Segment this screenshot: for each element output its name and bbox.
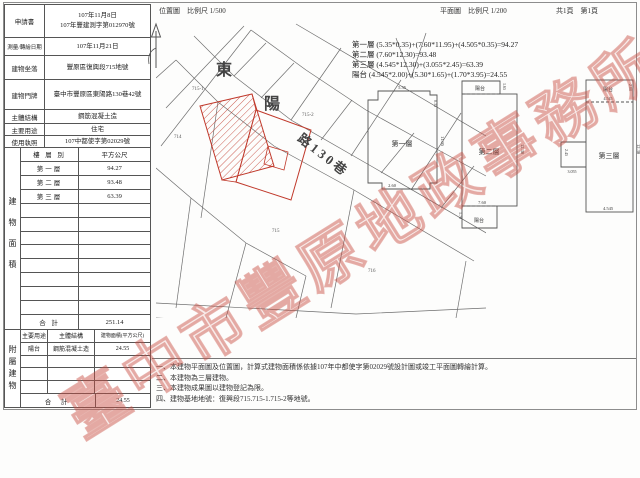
row-label: 主體結構 bbox=[5, 110, 45, 123]
total-area: 24.55 bbox=[96, 394, 150, 407]
table-row: 建物門牌 臺中市豐原區東陽路130巷42號 bbox=[4, 80, 151, 110]
dim-label: 11.95 bbox=[440, 136, 445, 147]
dim-label: 1.65 bbox=[502, 83, 507, 90]
row-value: 107中都使字第02029號 bbox=[45, 136, 150, 147]
row-label: 建物坐落 bbox=[5, 56, 45, 79]
table-row: 主體結構 鋼筋混凝土造 bbox=[4, 110, 151, 124]
floor-area-side-label: 建物面積 bbox=[5, 148, 21, 329]
floor-name: 第三層 bbox=[21, 190, 79, 203]
row-value: 住宅 bbox=[45, 124, 150, 135]
table-row: 第三層 63.39 bbox=[21, 190, 150, 204]
floor3-balcony-label: 陽台 bbox=[603, 86, 613, 93]
total-label: 合 計 bbox=[21, 394, 96, 407]
empty-row bbox=[21, 356, 150, 369]
row-value: 107年11月21日 bbox=[45, 38, 150, 55]
dim-label: 0.35 bbox=[433, 100, 438, 107]
subject-building-outline bbox=[200, 94, 311, 200]
row-value: 鋼筋混凝土造 bbox=[45, 110, 150, 123]
table-header-row: 樓 層 別 平方公尺 bbox=[21, 148, 150, 162]
note-line: 一、本建物平面圖及位置圖，計算式建物面積係依據107年中都使字第02029號設計… bbox=[156, 362, 636, 373]
parcel-number: 715 bbox=[272, 229, 280, 234]
empty-row bbox=[21, 273, 150, 287]
empty-row bbox=[21, 204, 150, 218]
total-label: 合 計 bbox=[21, 315, 79, 329]
parcel-number: 715-1 bbox=[192, 87, 204, 92]
column-header-floor: 樓 層 別 bbox=[21, 148, 79, 161]
floor2-label: 第二層 bbox=[479, 147, 500, 156]
column-header-structure: 主體結構 bbox=[48, 330, 95, 342]
table-row: 使用執照 107中都使字第02029號 bbox=[4, 136, 151, 148]
table-row: 陽台 鋼筋混凝土造 24.55 bbox=[21, 343, 150, 356]
parcel-number: 715-2 bbox=[302, 113, 314, 118]
dim-label: 7.60 bbox=[478, 200, 487, 205]
empty-row bbox=[21, 232, 150, 246]
dim-label: 3.055 bbox=[568, 169, 577, 174]
table-header-row: 主要用途 主體結構 建物面積(平方公尺) bbox=[21, 330, 150, 343]
floor-name: 第二層 bbox=[21, 176, 79, 189]
location-map-scale-label: 位置圖 比例尺 1/500 bbox=[159, 6, 226, 16]
table-row: 申請書 107年11月8日 107年豐建測字第012970號 bbox=[4, 4, 151, 38]
building-survey-document: { "header": { "location_scale": "位置圖 比例尺… bbox=[0, 0, 640, 412]
floor-area: 94.27 bbox=[79, 162, 150, 175]
floor-name: 第一層 bbox=[21, 162, 79, 175]
notes-block: 一、本建物平面圖及位置圖，計算式建物面積係依據107年中都使字第02029號設計… bbox=[152, 358, 636, 408]
floor3-label: 第三層 bbox=[599, 151, 620, 160]
floor1-label: 第一層 bbox=[392, 139, 413, 148]
building-info-panel: 申請書 107年11月8日 107年豐建測字第012970號 測量/轉繪日期 1… bbox=[4, 4, 151, 408]
calc-line: 第三層 (4.545*12.30)+(3.055*2.45)=63.39 bbox=[352, 60, 518, 70]
road-name-char: 東 bbox=[216, 56, 232, 80]
total-area: 251.14 bbox=[79, 315, 150, 329]
row-label: 測量/轉繪日期 bbox=[5, 38, 45, 55]
table-row: 測量/轉繪日期 107年11月21日 bbox=[4, 38, 151, 56]
calc-line: 第一層 (5.35*0.35)+(7.60*11.95)+(4.505*0.35… bbox=[352, 40, 518, 50]
row-label: 使用執照 bbox=[5, 136, 45, 147]
road-name-char: 陽 bbox=[264, 90, 280, 114]
annex-use: 陽台 bbox=[21, 343, 48, 355]
calc-line: 第二層 (7.60*12.30)=93.48 bbox=[352, 50, 518, 60]
empty-row bbox=[21, 245, 150, 259]
floor2-bottom-balcony-outline bbox=[462, 206, 497, 228]
total-row: 合 計 24.55 bbox=[21, 394, 150, 407]
dim-label: 5.35 bbox=[398, 85, 407, 90]
empty-row bbox=[21, 381, 150, 394]
row-value: 107年11月8日 107年豐建測字第012970號 bbox=[45, 5, 150, 37]
column-header-sqm: 平方公尺 bbox=[79, 148, 150, 161]
empty-row bbox=[21, 368, 150, 381]
page-number-label: 共1頁 第1頁 bbox=[556, 6, 598, 16]
table-row: 主要用途 住宅 bbox=[4, 124, 151, 136]
row-label: 申請書 bbox=[5, 5, 45, 37]
floor2-bottom-balcony-label: 陽台 bbox=[474, 217, 484, 224]
row-label: 主要用途 bbox=[5, 124, 45, 135]
annex-structure: 鋼筋混凝土造 bbox=[48, 343, 95, 355]
dim-label: 2.45 bbox=[564, 149, 569, 156]
column-header-area: 建物面積(平方公尺) bbox=[95, 330, 150, 342]
parcel-number: 716 bbox=[368, 269, 376, 274]
dim-label: 1.70 bbox=[458, 212, 463, 219]
floor2-balcony-label: 陽台 bbox=[475, 85, 485, 92]
floor-area: 93.48 bbox=[79, 176, 150, 189]
floor-plan-scale-label: 平面圖 比例尺 1/200 bbox=[440, 6, 507, 16]
empty-row bbox=[21, 218, 150, 232]
empty-row bbox=[21, 259, 150, 273]
dim-label: 12.30 bbox=[636, 144, 640, 155]
row-value: 豐原區復興段715地號 bbox=[45, 56, 150, 79]
table-row: 建物坐落 豐原區復興段715地號 bbox=[4, 56, 151, 80]
table-row: 第二層 93.48 bbox=[21, 176, 150, 190]
empty-row bbox=[21, 301, 150, 315]
dim-label: 4.545 bbox=[603, 206, 614, 211]
table-row: 第一層 94.27 bbox=[21, 162, 150, 176]
floor-area-table: 建物面積 樓 層 別 平方公尺 第一層 94.27 第二層 93.48 第三層 … bbox=[4, 148, 151, 330]
dim-label: 4.545 bbox=[604, 96, 613, 101]
parcel-number: 714 bbox=[174, 135, 182, 140]
row-label: 建物門牌 bbox=[5, 80, 45, 109]
floor-plans: 第一層 5.35 0.35 11.95 2.60 陽台 1.65 第二層 12.… bbox=[356, 70, 640, 232]
total-row: 合 計 251.14 bbox=[21, 315, 150, 329]
column-header-use: 主要用途 bbox=[21, 330, 48, 342]
annex-side-label: 附屬建物 bbox=[5, 330, 21, 407]
row-value: 臺中市豐原區東陽路130巷42號 bbox=[45, 80, 150, 109]
dim-label: 12.30 bbox=[520, 144, 525, 155]
note-line: 二、本建物為三層建物。 bbox=[156, 373, 636, 384]
floor-area: 63.39 bbox=[79, 190, 150, 203]
note-line: 四、建物基地地號：復興段715.715-1.715-2等地號。 bbox=[156, 394, 636, 405]
annex-area: 24.55 bbox=[95, 343, 150, 355]
dim-label: 2.00 bbox=[628, 84, 633, 91]
annex-building-table: 附屬建物 主要用途 主體結構 建物面積(平方公尺) 陽台 鋼筋混凝土造 24.5… bbox=[4, 330, 151, 408]
dim-label: 2.60 bbox=[388, 183, 397, 188]
empty-row bbox=[21, 287, 150, 301]
note-line: 三、本建物成果圖以建物登記為限。 bbox=[156, 383, 636, 394]
